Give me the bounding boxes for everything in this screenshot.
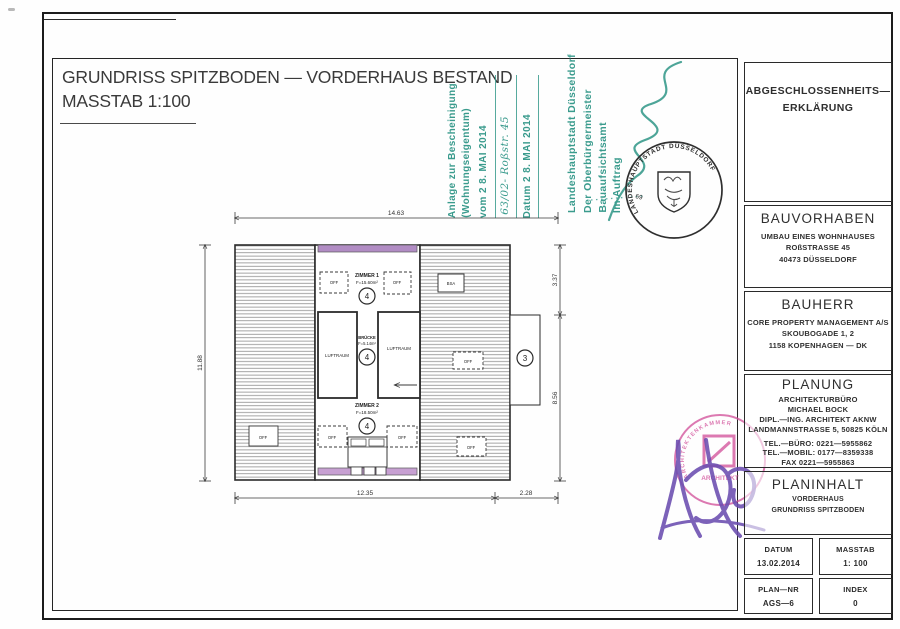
bsa-label: BSA xyxy=(447,281,456,286)
titleblock-bauvorhaben: BAUVORHABEN UMBAU EINES WOHNHAUSES ROßST… xyxy=(744,205,892,288)
stamp-rule-3 xyxy=(538,75,539,218)
planung-tel-mobil: TEL.—MOBIL: 0177—8359338 xyxy=(745,448,891,458)
bruecke-area: F=5.14m² xyxy=(358,341,376,346)
titleblock-masstab: MASSTAB 1: 100 xyxy=(819,538,892,575)
bauvorhaben-title: BAUVORHABEN xyxy=(745,211,891,226)
dim-left: 11.88 xyxy=(197,355,204,371)
unit-number-zimmer1: 4 xyxy=(365,292,370,301)
titleblock-datum: DATUM 13.02.2014 xyxy=(744,538,813,575)
masstab-value: 1: 100 xyxy=(820,559,891,568)
titleblock-bauherr: BAUHERR CORE PROPERTY MANAGEMENT A/S SKO… xyxy=(744,291,892,371)
architect-stamp-label: ARCHITEKT xyxy=(701,475,739,482)
city-seal-crest xyxy=(658,172,690,212)
datum-label: DATUM xyxy=(745,545,812,554)
titleblock-erklaerung: ABGESCHLOSSENHEITS— ERKLÄRUNG xyxy=(744,62,892,202)
dim-right-lower: 8.56 xyxy=(552,391,559,404)
stamp-rule-1 xyxy=(495,75,496,218)
zimmer2-label: ZIMMER 2 xyxy=(355,403,379,409)
off-label-1: OFF xyxy=(330,280,339,285)
titleblock-index: INDEX 0 xyxy=(819,578,892,614)
title-underline xyxy=(60,123,196,124)
city-seal-stamp: LANDESHAUPTSTADT DÜSSELDORF 69 xyxy=(616,132,732,248)
planung-line3: DIPL.—ING. ARCHITEKT AKNW xyxy=(745,415,891,425)
index-value: 0 xyxy=(820,599,891,608)
zimmer2-area: F=18.50m² xyxy=(356,410,378,415)
off-label-7: OFF xyxy=(467,445,476,450)
bauherr-title: BAUHERR xyxy=(745,297,891,312)
fold-mark-line xyxy=(44,19,176,20)
city-seal-ring xyxy=(626,142,722,238)
titleblock-plannr: PLAN—NR AGS—6 xyxy=(744,578,813,614)
dim-bottom-main: 12.35 xyxy=(357,490,374,497)
plannr-value: AGS—6 xyxy=(745,599,812,608)
index-label: INDEX xyxy=(820,585,891,594)
off-label-6: OFF xyxy=(464,359,473,364)
dim-bottom-right: 2.28 xyxy=(520,490,533,497)
zimmer1-label: ZIMMER 1 xyxy=(355,273,379,279)
zimmer1-area: F=15.60m² xyxy=(356,280,378,285)
planung-line4: LANDMANNSTRASSE 5, 50825 KÖLN xyxy=(745,425,891,435)
unit-number-bruecke: 4 xyxy=(365,353,370,362)
titleblock-planung: PLANUNG ARCHITEKTURBÜRO MICHAEL BOCK DIP… xyxy=(744,374,892,468)
bauvorhaben-line1: UMBAU EINES WOHNHAUSES xyxy=(745,231,891,242)
off-label-3: OFF xyxy=(259,435,268,440)
planinhalt-title: PLANINHALT xyxy=(745,477,891,492)
bauherr-line1: CORE PROPERTY MANAGEMENT A/S xyxy=(745,317,891,328)
floor-plan: ZIMMER 1 F=15.60m² 4 OFF OFF BSA LUFTRAU… xyxy=(185,200,585,510)
datum-value: 13.02.2014 xyxy=(745,559,812,568)
stamp-rule-2 xyxy=(516,75,517,218)
plannr-label: PLAN—NR xyxy=(745,585,812,594)
unit-number-zimmer2: 4 xyxy=(365,422,370,431)
dim-right-upper: 3.37 xyxy=(552,273,559,286)
drawing-title: GRUNDRISS SPITZBODEN — VORDERHAUS BESTAN… xyxy=(62,66,542,113)
bruecke-label: BRÜCKE xyxy=(358,335,376,340)
erklaerung-line2: ERKLÄRUNG xyxy=(745,100,891,117)
unit-number-annex: 3 xyxy=(523,354,528,363)
luftraum-right-label: LUFTRAUM xyxy=(387,346,411,351)
planung-title: PLANUNG xyxy=(745,377,891,392)
luftraum-left-label: LUFTRAUM xyxy=(325,353,349,358)
bauvorhaben-line3: 40473 DÜSSELDORF xyxy=(745,254,891,265)
scan-artifact xyxy=(8,8,15,11)
planinhalt-line2: GRUNDRISS SPITZBODEN xyxy=(745,506,891,517)
planinhalt-line1: VORDERHAUS xyxy=(745,495,891,506)
titleblock-planinhalt: PLANINHALT VORDERHAUS GRUNDRISS SPITZBOD… xyxy=(744,471,892,535)
planung-line2: MICHAEL BOCK xyxy=(745,405,891,415)
bed-furniture xyxy=(348,437,387,475)
drawing-title-line1: GRUNDRISS SPITZBODEN — VORDERHAUS BESTAN… xyxy=(62,66,542,90)
planung-fax: FAX 0221—5955863 xyxy=(745,458,891,468)
planung-line1: ARCHITEKTURBÜRO xyxy=(745,395,891,405)
stamp-authority-line1: Landeshauptstadt Düsseldorf xyxy=(566,54,578,213)
city-seal-number: 69 xyxy=(635,193,644,202)
bauherr-line3: 1158 KOPENHAGEN — DK xyxy=(745,340,891,351)
bauvorhaben-line2: ROßSTRASSE 45 xyxy=(745,242,891,253)
masstab-label: MASSTAB xyxy=(820,545,891,554)
planung-tel-buero: TEL.—BÜRO: 0221—5955862 xyxy=(745,439,891,449)
scanned-plan-page: GRUNDRISS SPITZBODEN — VORDERHAUS BESTAN… xyxy=(0,0,900,629)
off-label-5: OFF xyxy=(398,435,407,440)
off-label-2: OFF xyxy=(393,280,402,285)
stamp-attachment-line1: Anlage zur Bescheinigung xyxy=(447,83,458,218)
off-label-4: OFF xyxy=(328,435,337,440)
erklaerung-line1: ABGESCHLOSSENHEITS— xyxy=(745,83,891,100)
dim-top: 14.63 xyxy=(388,210,405,217)
bauherr-line2: SKOUBOGADE 1, 2 xyxy=(745,328,891,339)
purple-wall-top xyxy=(318,245,417,252)
